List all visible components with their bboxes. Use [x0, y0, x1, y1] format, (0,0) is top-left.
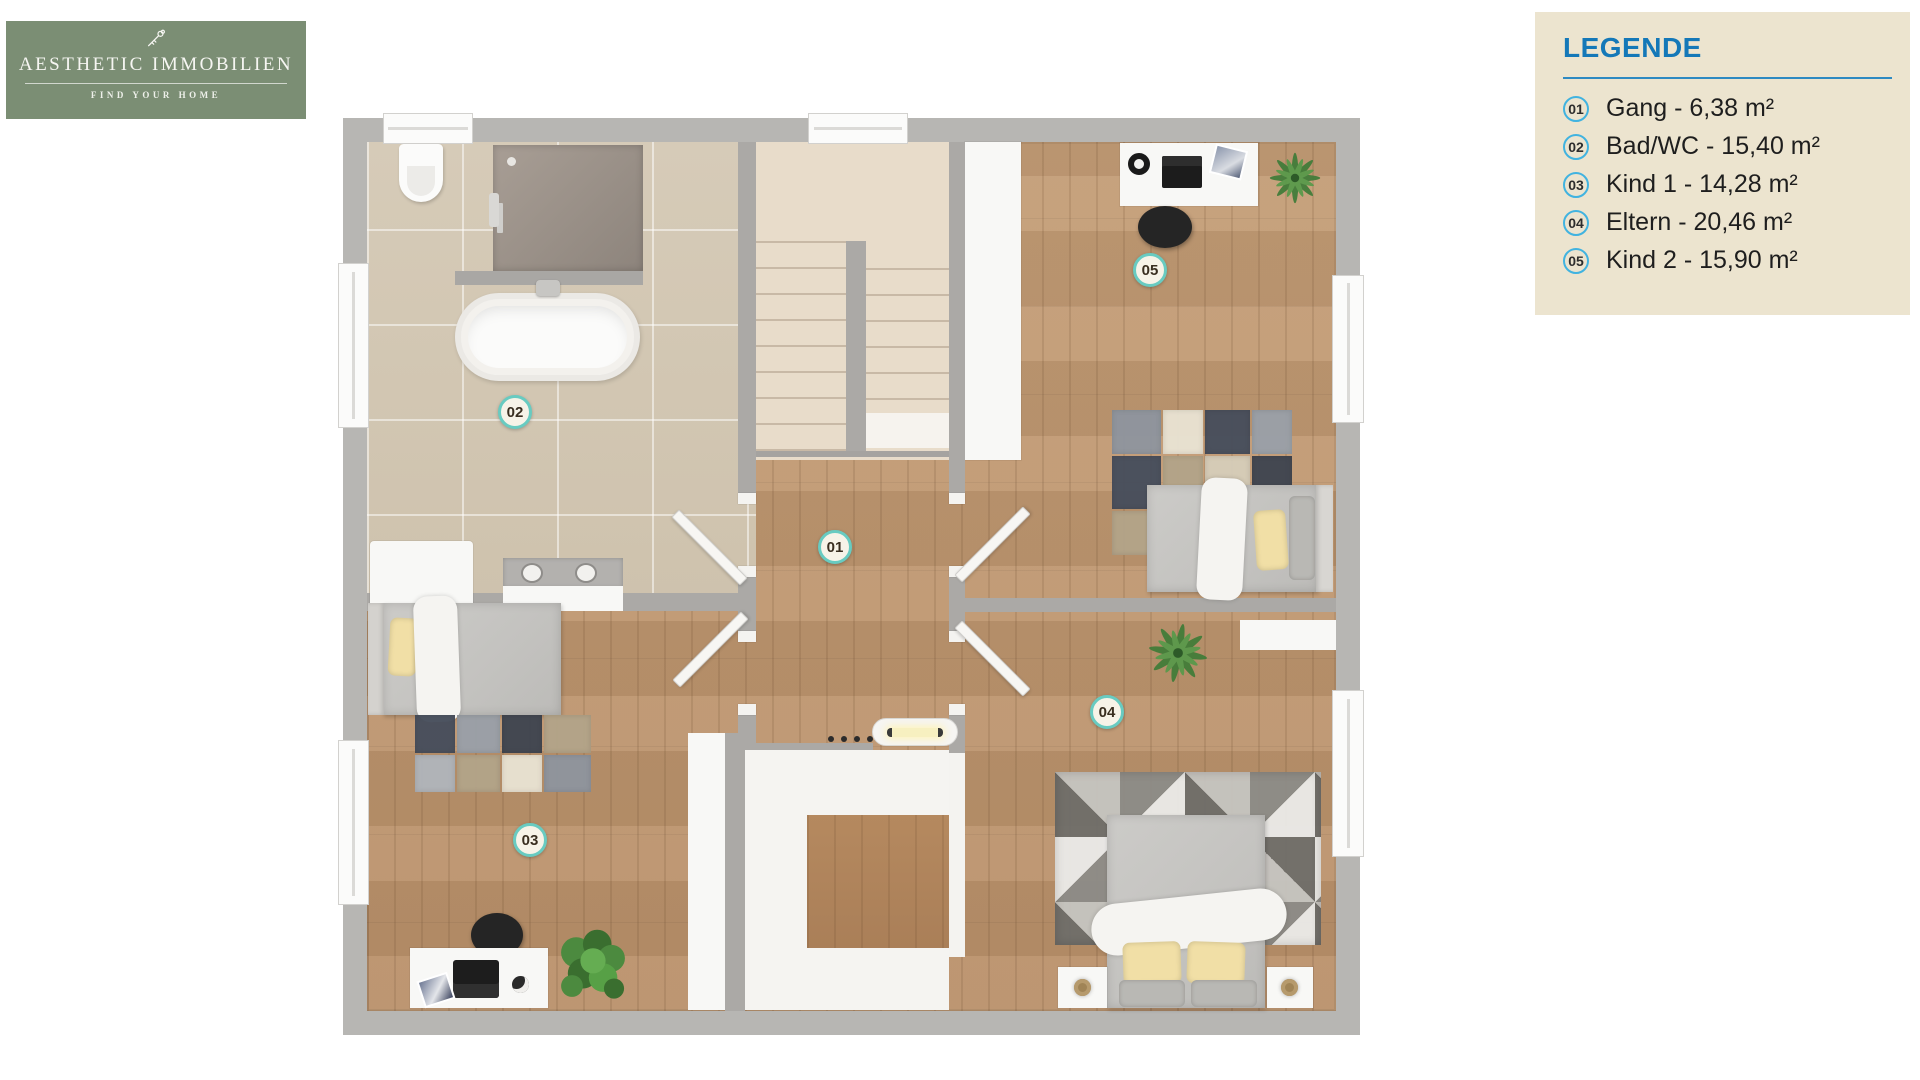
pillow [1186, 941, 1245, 985]
shower [493, 145, 643, 271]
door-jamb [738, 631, 756, 642]
plant [1261, 148, 1329, 208]
legend-number-badge: 05 [1563, 248, 1589, 274]
legend-item-label: Kind 1 - 14,28 m² [1606, 170, 1798, 199]
legend-number-badge: 02 [1563, 134, 1589, 160]
window [1332, 690, 1364, 857]
rug-kind1 [415, 715, 591, 792]
pillow [1119, 980, 1185, 1007]
toilet [399, 144, 443, 202]
headphones [1128, 153, 1150, 175]
stair-landing [866, 413, 956, 448]
door-jamb [738, 493, 756, 504]
room-badge-kind1: 03 [513, 823, 547, 857]
pillow [1191, 980, 1257, 1007]
room-badge-bad: 02 [498, 395, 532, 429]
room-badge-kind2: 05 [1133, 253, 1167, 287]
room-badge-eltern: 04 [1090, 695, 1124, 729]
plant [551, 920, 635, 1010]
bathtub-faucet [536, 280, 560, 296]
shower-drain [507, 157, 516, 166]
desk-book [419, 974, 453, 1005]
legend-panel: LEGENDE 01 Gang - 6,38 m² 02 Bad/WC - 15… [1535, 12, 1910, 315]
legend-number-badge: 03 [1563, 172, 1589, 198]
brand-title: AESTHETIC IMMOBILIEN [19, 54, 293, 76]
railing-spindle [841, 736, 847, 742]
legend-item-bad: 02 Bad/WC - 15,40 m² [1563, 132, 1896, 161]
legend-item-kind2: 05 Kind 2 - 15,90 m² [1563, 246, 1896, 275]
legend-title: LEGENDE [1563, 32, 1896, 64]
room-badge-gang: 01 [818, 530, 852, 564]
lamp-glow [887, 728, 943, 737]
bed-headboard [1316, 485, 1333, 592]
wall-kind1-void [725, 733, 745, 1011]
stair-bottom-edge [756, 451, 956, 457]
sink [521, 563, 543, 583]
stair-closet-strip [965, 142, 1021, 460]
legend-item-kind1: 03 Kind 1 - 14,28 m² [1563, 170, 1896, 199]
desk-picture [1211, 146, 1245, 178]
pillow [1289, 496, 1315, 580]
legend-item-eltern: 04 Eltern - 20,46 m² [1563, 208, 1896, 237]
nightstand [1267, 967, 1313, 1008]
wall-bath-stairs [738, 142, 756, 493]
legend-item-label: Eltern - 20,46 m² [1606, 208, 1792, 237]
legend-number-badge: 04 [1563, 210, 1589, 236]
blanket [413, 595, 461, 722]
laptop [1162, 156, 1202, 188]
door-jamb [738, 704, 756, 715]
legend-item-label: Gang - 6,38 m² [1606, 94, 1774, 123]
window [338, 263, 369, 428]
pillow [1253, 509, 1289, 571]
nightstand-lamp [1281, 979, 1298, 996]
stair-flight-right [866, 268, 956, 413]
pillow [1122, 941, 1181, 985]
shower-fixture [489, 193, 499, 227]
railing-spindle [854, 736, 860, 742]
window [383, 113, 473, 144]
legend-number-badge: 01 [1563, 96, 1589, 122]
legend-item-label: Bad/WC - 15,40 m² [1606, 132, 1820, 161]
vanity-counter [503, 558, 623, 588]
window [808, 113, 908, 144]
nightstand-lamp [1074, 979, 1091, 996]
brand-logo: AESTHETIC IMMOBILIEN FIND YOUR HOME [6, 21, 306, 119]
typewriter [453, 960, 499, 998]
toilet-bowl [407, 166, 435, 196]
stair-flight-left [756, 241, 846, 455]
door-jamb [949, 493, 965, 504]
door-jamb [949, 704, 965, 715]
blanket [1196, 477, 1248, 601]
brand-divider [25, 83, 287, 84]
desk-kind2 [1120, 143, 1258, 206]
wall-kind2-eltern [949, 598, 1336, 612]
wall-stairs-kind2 [949, 142, 965, 493]
desk-kind1 [410, 948, 548, 1008]
bathtub [455, 293, 640, 381]
desk-chair-kind2 [1138, 206, 1192, 248]
nightstand [1058, 967, 1107, 1008]
railing-light [872, 718, 958, 746]
railing-spindle [867, 736, 873, 742]
stair-divider-wall [846, 241, 866, 455]
bed-headboard [368, 603, 384, 715]
key-icon [145, 28, 167, 50]
sink [575, 563, 597, 583]
stairwell-void-floor [807, 815, 949, 948]
legend-item-gang: 01 Gang - 6,38 m² [1563, 94, 1896, 123]
desk-mouse [512, 976, 529, 993]
railing-spindle [828, 736, 834, 742]
wardrobe-eltern [1240, 620, 1336, 650]
legend-divider [1563, 77, 1892, 79]
window [1332, 275, 1364, 423]
void-right-band [949, 753, 965, 957]
window [338, 740, 369, 905]
legend-item-label: Kind 2 - 15,90 m² [1606, 246, 1798, 275]
page-canvas: AESTHETIC IMMOBILIEN FIND YOUR HOME [0, 0, 1920, 1080]
plant [1138, 618, 1218, 688]
closet-kind1 [688, 733, 725, 1010]
floorplan: 01 02 03 04 05 [343, 118, 1360, 1035]
brand-tagline: FIND YOUR HOME [91, 90, 221, 100]
